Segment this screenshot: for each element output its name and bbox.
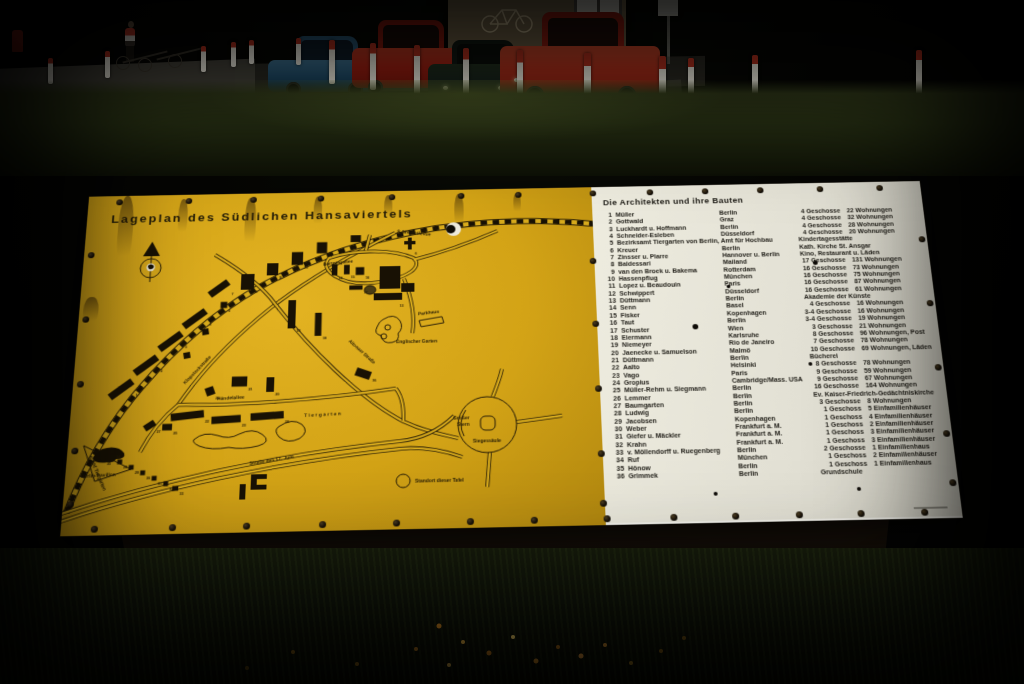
map-building: [232, 376, 248, 386]
screw: [592, 321, 599, 327]
screw: [796, 511, 804, 518]
map-building: [171, 410, 205, 421]
map-building: [267, 263, 279, 275]
map-building-number: 14: [339, 276, 343, 280]
church-cross-symbol: [404, 237, 415, 249]
screw: [918, 236, 925, 242]
map-building: [351, 235, 361, 242]
map-building: [292, 252, 304, 265]
map-building-number: 33: [179, 492, 183, 496]
map-building-number: 11: [328, 254, 332, 258]
map-building-number: 9: [279, 276, 281, 280]
map-labels: S-Bhf BellevueS-Bhf TiergartenBartningal…: [80, 227, 503, 492]
grass-background: [0, 80, 1024, 176]
map-building-number: 17: [364, 291, 368, 295]
map-building-number: 4: [209, 323, 211, 327]
map-building-number: 21: [248, 388, 252, 392]
map-building-number: 16: [365, 276, 369, 280]
map-building: [183, 352, 190, 359]
map-building-number: 27: [156, 430, 160, 434]
bicycle: [138, 58, 152, 72]
legend-location-circle: [396, 474, 410, 488]
bollard: [105, 51, 110, 78]
bollard: [249, 40, 254, 64]
map-building-number: 12: [362, 243, 366, 247]
map-street-label: Tiergarten: [304, 411, 342, 419]
bollard: [231, 42, 236, 67]
screw: [531, 517, 538, 524]
screw: [757, 187, 764, 193]
bollard: [329, 40, 335, 84]
map-building-number: 10: [304, 266, 308, 270]
row-number: 36: [614, 474, 627, 482]
speck: [813, 261, 818, 265]
speck: [714, 492, 718, 496]
screw: [515, 192, 522, 198]
map-building: [220, 302, 227, 308]
map-building: [101, 456, 106, 461]
screw: [926, 300, 933, 306]
speck: [726, 285, 730, 289]
map-building-number: 28: [123, 465, 127, 469]
pedestrian-jacket: [125, 28, 135, 47]
map-building: [151, 476, 156, 481]
map-building: [117, 459, 122, 464]
map-building-number: 8: [255, 291, 257, 295]
map-building-number: 3: [185, 346, 187, 350]
screw: [816, 186, 823, 192]
map-building-number: 2: [160, 370, 162, 374]
map-building: [202, 328, 209, 335]
map-building-number: 29: [135, 471, 139, 475]
map-building: [344, 265, 350, 275]
grass-foreground: [0, 548, 1024, 684]
siegessaeule-symbol: [480, 416, 495, 430]
screw: [600, 500, 607, 507]
map-building: [266, 377, 274, 392]
street-sign: [658, 0, 678, 16]
screw: [590, 258, 597, 264]
map-building: [205, 386, 216, 397]
screw: [921, 509, 929, 516]
speck: [692, 324, 698, 329]
map-street-label: Siegessäule: [473, 438, 502, 445]
map-building: [356, 267, 365, 275]
map-street-label: Parkhaus: [418, 309, 440, 317]
north-arrow-icon: [139, 241, 162, 282]
screw: [670, 514, 677, 521]
map-building-number: 13: [400, 304, 404, 308]
map-building-number: 30: [146, 476, 150, 480]
map-building: [251, 411, 284, 421]
pedestrian: [128, 21, 134, 28]
wildflowers: [0, 0, 2, 2]
map-building: [354, 367, 372, 379]
map-street-label: Altonaer Straße: [347, 339, 377, 366]
map-building-number: 22: [205, 420, 209, 424]
map-building-number: 25: [173, 431, 177, 435]
map-building-number: 7: [231, 293, 233, 297]
map-building: [110, 449, 115, 454]
map-building-number: 6: [415, 252, 417, 256]
map-street-label: Stern: [457, 422, 470, 428]
screw: [647, 189, 654, 195]
map-building: [349, 285, 362, 290]
screw: [949, 479, 957, 486]
map-building: [241, 274, 255, 290]
photo-scene: Lageplan des Südlichen Hansaviertels: [0, 0, 1024, 684]
screw: [943, 430, 951, 437]
map-building-number: 24: [285, 420, 289, 424]
map-building: [317, 242, 328, 253]
map-title: Lageplan des Südlichen Hansaviertels: [111, 207, 413, 226]
map-street-label: Händelallee: [217, 395, 244, 403]
map-building-number: 5: [228, 309, 230, 313]
map-building-number: 1: [135, 394, 137, 398]
map-building: [288, 300, 297, 328]
speck: [857, 487, 861, 491]
map-building-number: 34: [116, 455, 120, 459]
map-building-number: 18: [296, 329, 300, 333]
dirt-streak: [454, 194, 464, 229]
bollard: [296, 38, 301, 65]
parkhaus-outline: [419, 317, 444, 327]
screw: [595, 385, 602, 392]
row-number: 35: [613, 466, 626, 474]
map-street-label: Standort dieser Tafel: [415, 478, 464, 485]
site-map: Lageplan des Südlichen Hansaviertels: [60, 187, 606, 538]
map-building-number: 15: [351, 275, 355, 279]
screw: [934, 364, 942, 370]
screw: [732, 513, 739, 520]
screw: [590, 190, 597, 196]
map-building-number: 36: [372, 379, 376, 383]
bollard: [201, 46, 206, 72]
screw: [857, 510, 865, 517]
map-building-number: 20: [275, 393, 279, 397]
streets: [60, 230, 565, 523]
map-building: [208, 279, 231, 298]
screw: [603, 515, 610, 522]
screw: [598, 450, 605, 457]
map-building: [172, 486, 178, 491]
architects-list: Die Architekten und ihre Bauten 1MüllerB…: [601, 193, 951, 482]
screw: [702, 188, 709, 194]
map-building: [211, 415, 240, 424]
speck: [808, 362, 812, 366]
map-buildings: 1234578910111214151617181920212223242526…: [98, 234, 417, 498]
red-pillar: [12, 30, 23, 52]
map-panel: Lageplan des Südlichen Hansaviertels: [60, 187, 606, 536]
map-building: [162, 424, 172, 431]
map-building: [140, 470, 145, 475]
architect-city: Berlin: [739, 470, 813, 479]
map-street-label: Englischer Garten: [396, 339, 437, 345]
information-board: Lageplan des Südlichen Hansaviertels: [59, 180, 964, 537]
map-street-label: Großer: [453, 415, 469, 421]
map-building: [129, 465, 134, 470]
map-building-number: 35: [107, 462, 111, 466]
map-building-number: 19: [323, 337, 327, 341]
architects-table: 1MüllerBerlin4 Geschosse22 Wohnungen2Got…: [602, 207, 952, 482]
akademie-building: [380, 266, 401, 289]
map-building: [163, 481, 168, 486]
map-building: [315, 313, 322, 336]
screw: [876, 185, 883, 191]
map-building-number: 31: [158, 482, 162, 486]
map-building-number: 23: [242, 424, 246, 428]
